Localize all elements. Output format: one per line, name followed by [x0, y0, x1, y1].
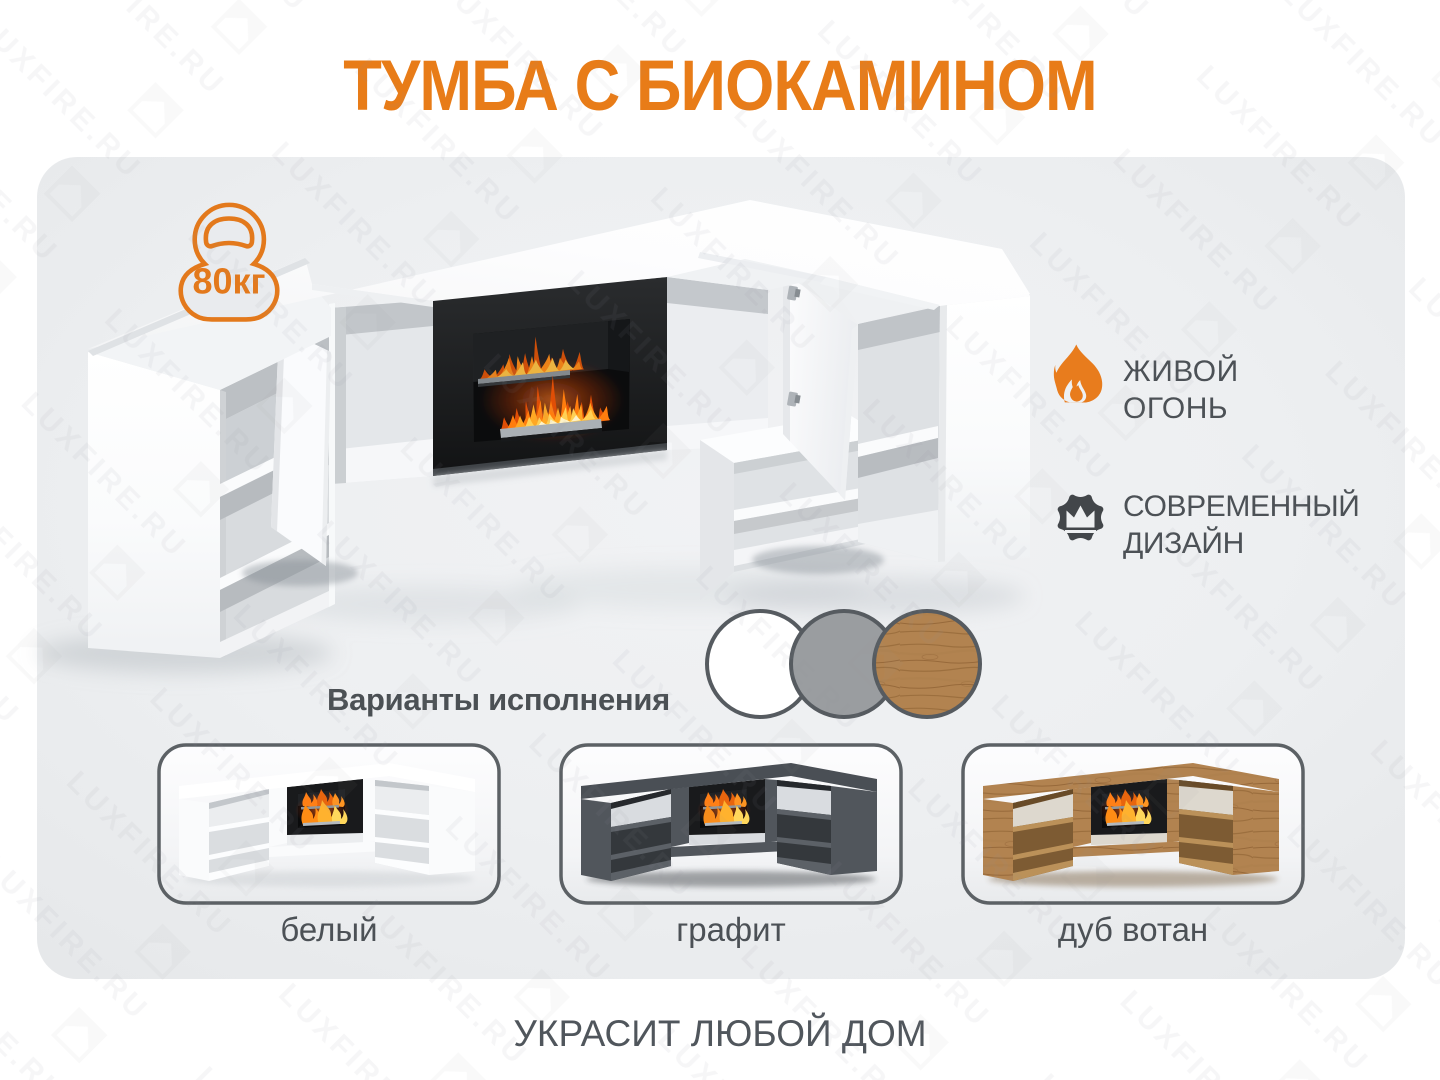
- svg-text:80кг: 80кг: [192, 261, 265, 302]
